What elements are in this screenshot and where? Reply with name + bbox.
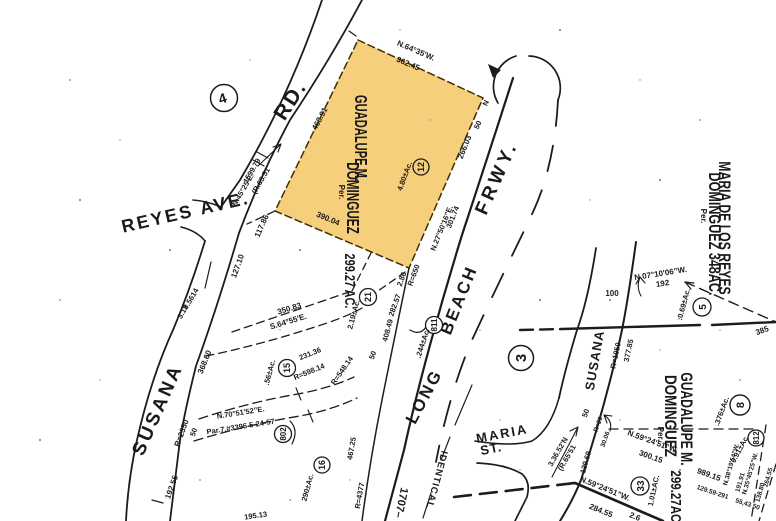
svg-text:802: 802	[279, 427, 288, 441]
svg-text:50: 50	[367, 350, 378, 361]
svg-text:100: 100	[605, 289, 619, 298]
svg-text:264.55: 264.55	[762, 467, 774, 488]
svg-text:REYES AVE.: REYES AVE.	[120, 188, 252, 237]
svg-text:.376±Ac.: .376±Ac.	[712, 395, 731, 427]
svg-text:284.55: 284.55	[588, 502, 615, 520]
svg-text:15: 15	[282, 363, 292, 373]
svg-text:SUSANA: SUSANA	[582, 329, 607, 392]
svg-text:Per.: Per.	[699, 209, 708, 224]
svg-text:1.01±AC.: 1.01±AC.	[646, 474, 661, 507]
svg-text:231.36: 231.36	[298, 345, 323, 362]
svg-text:16: 16	[317, 460, 327, 470]
svg-text:300.15: 300.15	[638, 448, 665, 465]
svg-text:.56±Ac.: .56±Ac.	[262, 359, 277, 387]
svg-text:DOMINGUEZ 348AC.: DOMINGUEZ 348AC.	[704, 173, 723, 296]
svg-text:385: 385	[754, 324, 770, 337]
svg-text:RD.: RD.	[269, 77, 311, 125]
svg-text:192.55: 192.55	[163, 474, 180, 501]
svg-text:290±Ac.: 290±Ac.	[300, 473, 316, 503]
svg-text:ST.: ST.	[479, 439, 503, 458]
svg-text:117.86: 117.86	[253, 213, 271, 239]
svg-text:S.64°55'E.: S.64°55'E.	[269, 312, 308, 332]
svg-text:467.25: 467.25	[345, 436, 358, 460]
svg-text::0.69±Ac.: :0.69±Ac.	[675, 287, 692, 321]
svg-text:R=598.14: R=598.14	[292, 361, 326, 382]
svg-text:195.13: 195.13	[244, 509, 268, 521]
svg-text:N: N	[481, 99, 491, 108]
svg-text:IDENTICAL: IDENTICAL	[423, 449, 449, 509]
svg-text:129.69: 129.69	[578, 450, 593, 475]
svg-text:282.57: 282.57	[386, 293, 402, 318]
svg-text:4: 4	[216, 89, 229, 107]
svg-text:50: 50	[188, 427, 199, 438]
svg-text:811: 811	[430, 318, 439, 331]
svg-text:377.85: 377.85	[622, 338, 636, 362]
svg-text:50: 50	[472, 119, 484, 130]
svg-text:408.49: 408.49	[380, 318, 395, 343]
svg-text:R=20: R=20	[593, 416, 605, 434]
svg-text:LONG: LONG	[402, 366, 447, 427]
svg-text:Per.: Per.	[337, 185, 346, 200]
svg-text:129.59·291: 129.59·291	[696, 484, 730, 501]
svg-text:989.15: 989.15	[696, 466, 723, 483]
svg-text:Par.7,#3396 5-24-57: Par.7,#3396 5-24-57	[206, 417, 275, 437]
svg-text:FRWY.: FRWY.	[471, 138, 522, 218]
svg-text:5: 5	[698, 304, 709, 310]
svg-text:21: 21	[363, 292, 373, 302]
svg-text:1707–: 1707–	[392, 486, 410, 518]
svg-text:368.60: 368.60	[196, 349, 214, 376]
svg-text:50: 50	[580, 408, 591, 419]
svg-text:812: 812	[752, 431, 761, 445]
svg-text:192: 192	[655, 278, 670, 289]
svg-text:30.06: 30.06	[600, 430, 612, 448]
svg-text:8: 8	[735, 402, 747, 408]
svg-text:3: 3	[513, 354, 530, 362]
svg-text:33: 33	[636, 480, 647, 492]
svg-text:R=1050: R=1050	[608, 342, 622, 370]
svg-text:12: 12	[416, 162, 426, 172]
svg-text:299.27AC.: 299.27AC.	[668, 470, 685, 521]
